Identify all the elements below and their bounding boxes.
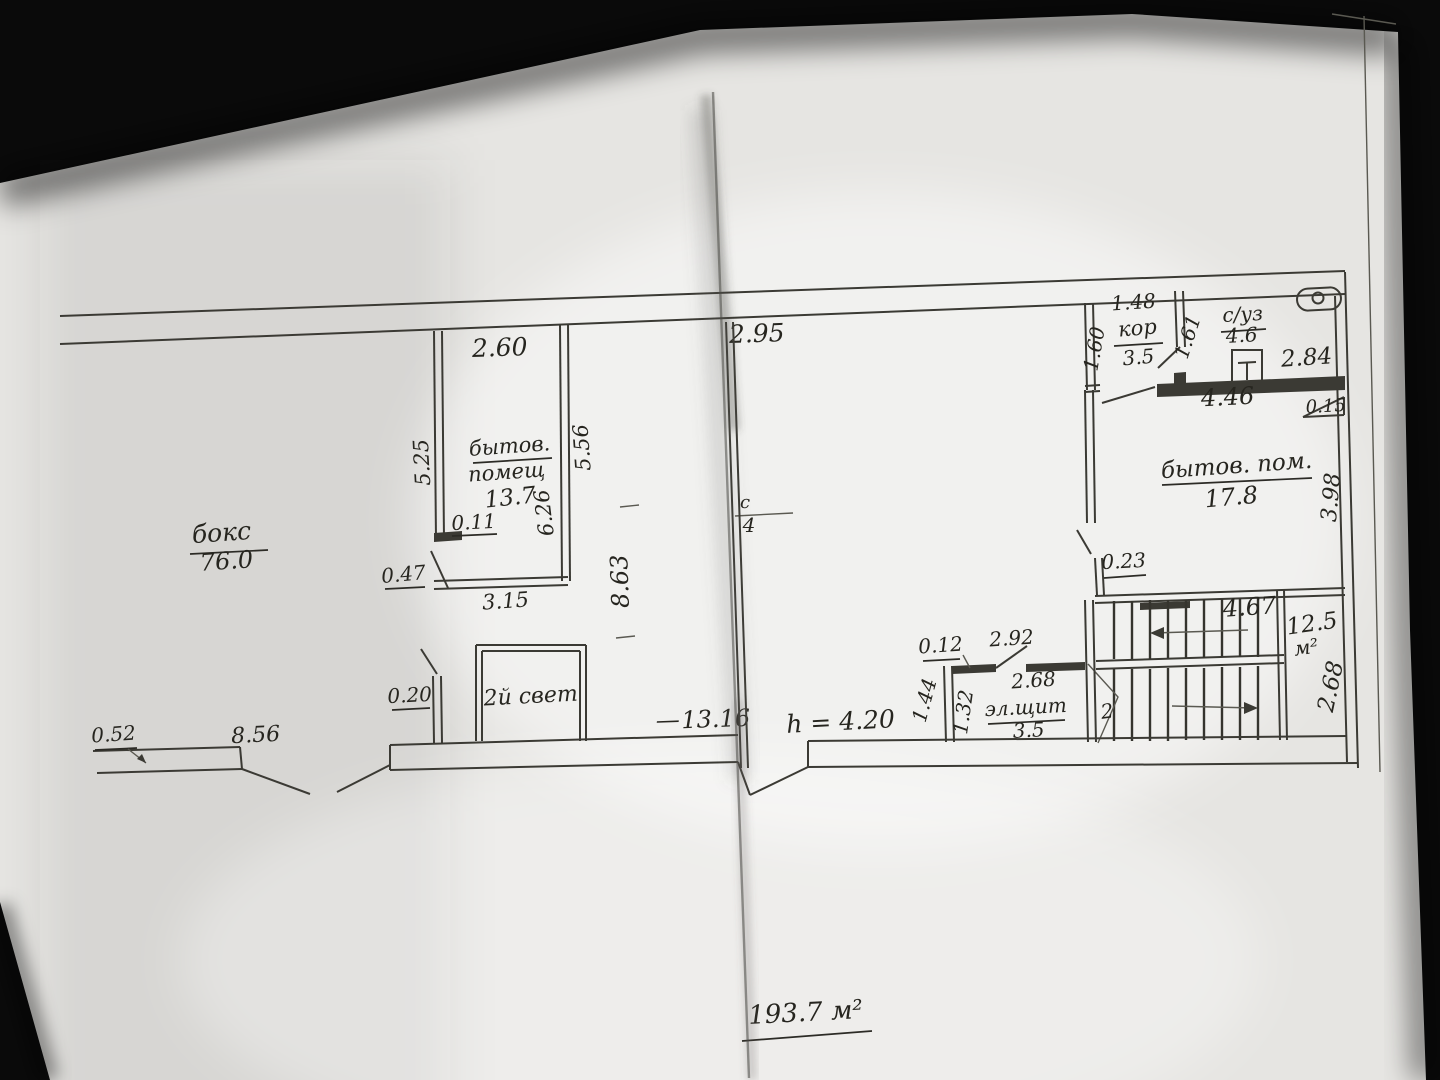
dim-room137-left: 5.25	[409, 438, 435, 486]
height-note: h = 4.20	[786, 704, 896, 739]
room-area-kor: 3.5	[1121, 344, 1155, 371]
dim-el-top: 2.92	[987, 624, 1034, 651]
dim-ramp-large: 8.56	[231, 722, 281, 750]
dim-kor-top: 1.48	[1110, 288, 1156, 315]
dim-lower-door: 0.20	[387, 682, 433, 708]
dim-suz-right: 2.84	[1279, 343, 1333, 373]
room-area-bytov137: 13.7	[483, 482, 537, 513]
total-area-value: 193.7 м²	[748, 995, 864, 1031]
axis-number: 4	[742, 513, 756, 537]
dim-el-inner: 2.68	[1009, 666, 1056, 693]
dim-width-dash: —	[655, 706, 680, 735]
dim-el-offset: 0.12	[917, 631, 963, 658]
dim-room137-bottom: 3.15	[481, 587, 529, 614]
dim-ramp-small: 0.52	[90, 720, 136, 747]
dim-suz-wall: 4.46	[1199, 382, 1255, 413]
room-label-el: эл.щит	[984, 693, 1067, 721]
room-label-kor: кор	[1117, 314, 1158, 341]
threshold-mark: 0.15	[1303, 395, 1346, 418]
stairs-area-unit: м²	[1292, 633, 1320, 660]
floor-plan-drawing: бокс 76.0 2.60 5.25 5.56 6.26 0.11 бытов…	[0, 0, 1440, 1080]
dim-room137-right: 5.56	[568, 423, 595, 471]
dim-section-depth: 8.63	[605, 554, 635, 608]
dim-room137-door: 0.47	[380, 560, 427, 588]
dim-bytov178-right: 3.98	[1317, 472, 1346, 523]
room-area-suz: 4.6	[1224, 322, 1258, 348]
room-area-boks: 76.0	[199, 545, 254, 577]
second-light-label: 2й свет	[482, 682, 578, 712]
floor-plan-photo: бокс 76.0 2.60 5.25 5.56 6.26 0.11 бытов…	[0, 0, 1440, 1080]
dim-room137-width: 2.60	[470, 332, 528, 363]
dim-center-top: 2.95	[727, 318, 785, 349]
room-area-bytov178: 17.8	[1203, 481, 1259, 514]
axis-letter: с	[740, 492, 750, 513]
dim-bytov178-door: 0.23	[1101, 548, 1147, 574]
dim-stairs-top: 4.67	[1221, 591, 1278, 623]
room-label-boks: бокс	[191, 516, 252, 549]
dim-suz-step: 0.15	[1305, 395, 1346, 418]
